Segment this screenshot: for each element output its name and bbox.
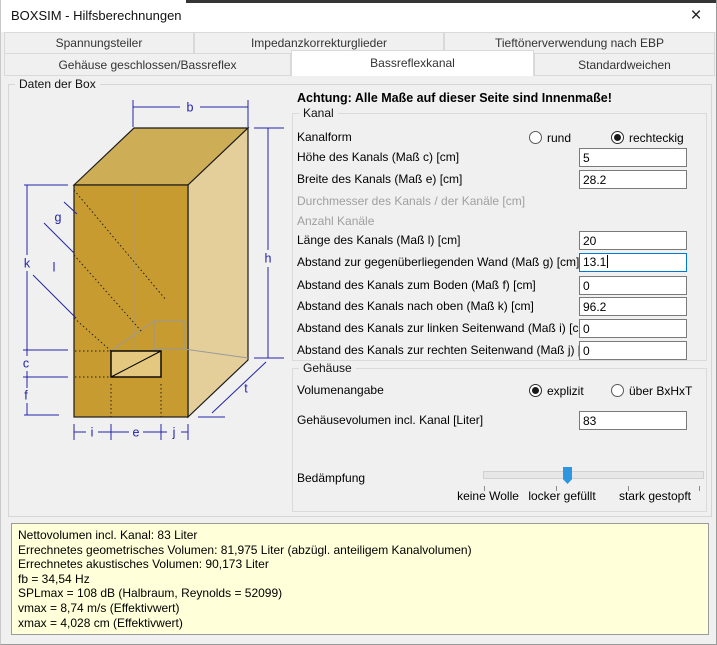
abstand-boden-label: Abstand des Kanals zum Boden (Maß f) [cm…	[297, 276, 536, 295]
tab-gehaeuse-geschlossen-bassreflex[interactable]: Gehäuse geschlossen/Bassreflex	[4, 53, 291, 76]
bedaempfung-label: Bedämpfung	[297, 469, 365, 488]
dim-label-f: f	[24, 388, 28, 402]
result-vmax: vmax = 8,74 m/s (Effektivwert)	[18, 601, 702, 616]
port-opening	[111, 351, 161, 377]
breite-label: Breite des Kanals (Maß e) [cm]	[297, 170, 462, 189]
breite-input[interactable]	[579, 170, 687, 189]
kanalform-label: Kanalform	[297, 128, 352, 147]
result-geometrisches-volumen: Errechnetes geometrisches Volumen: 81,97…	[18, 543, 702, 558]
hoehe-input[interactable]	[579, 148, 687, 167]
anzahl-kanaele-label: Anzahl Kanäle	[297, 212, 374, 231]
dim-label-g: g	[55, 210, 62, 224]
box-diagram: b h k g l c f i e j t	[1, 85, 291, 455]
boxsim-dialog: BOXSIM - Hilfsberechnungen × Spannungste…	[0, 0, 717, 645]
radio-rund-icon	[529, 131, 542, 144]
innenmasse-warning: Achtung: Alle Maße auf dieser Seite sind…	[297, 91, 612, 105]
result-splmax: SPLmax = 108 dB (Halbraum, Reynolds = 52…	[18, 586, 702, 601]
slider-label-keine-wolle: keine Wolle	[457, 489, 519, 503]
dim-label-b: b	[187, 100, 194, 114]
abstand-gegenueber-input[interactable]: 13.1	[579, 253, 687, 272]
laenge-input[interactable]	[579, 231, 687, 250]
radio-explizit[interactable]: explizit	[529, 381, 584, 400]
results-panel: Nettovolumen incl. Kanal: 83 Liter Errec…	[11, 523, 709, 635]
abstand-boden-input[interactable]	[579, 276, 687, 295]
abstand-links-label: Abstand des Kanals zur linken Seitenwand…	[297, 319, 592, 338]
radio-rund[interactable]: rund	[529, 128, 571, 147]
slider-label-stark-gestopft: stark gestopft	[619, 489, 691, 503]
close-button[interactable]: ×	[682, 4, 710, 28]
tab-bassreflexkanal[interactable]: Bassreflexkanal	[291, 50, 534, 76]
text-caret	[607, 255, 608, 268]
dim-label-c: c	[23, 356, 29, 370]
abstand-rechts-input[interactable]	[579, 341, 687, 360]
tab-standardweichen[interactable]: Standardweichen	[534, 53, 715, 76]
abstand-rechts-label: Abstand des Kanals zur rechten Seitenwan…	[297, 341, 600, 360]
dim-label-l: l	[53, 260, 56, 274]
bedaempfung-slider-track[interactable]	[483, 471, 704, 479]
slider-label-locker-gefuellt: locker gefüllt	[528, 489, 595, 503]
dim-label-i: i	[91, 425, 94, 439]
radio-rechteckig-icon	[611, 131, 624, 144]
window-title: BOXSIM - Hilfsberechnungen	[11, 8, 182, 23]
slider-tick	[699, 486, 700, 491]
gehaeusevolumen-label: Gehäusevolumen incl. Kanal [Liter]	[297, 411, 483, 430]
dim-label-j: j	[172, 425, 176, 439]
result-xmax: xmax = 4,028 cm (Effektivwert)	[18, 616, 702, 631]
radio-ueber-bxhxt[interactable]: über BxHxT	[611, 381, 692, 400]
abstand-gegenueber-label: Abstand zur gegenüberliegenden Wand (Maß…	[297, 253, 579, 272]
abstand-oben-label: Abstand des Kanals nach oben (Maß k) [cm…	[297, 297, 534, 316]
kanal-legend: Kanal	[299, 106, 338, 120]
result-akustisches-volumen: Errechnetes akustisches Volumen: 90,173 …	[18, 557, 702, 572]
volumenangabe-label: Volumenangabe	[297, 381, 384, 400]
dim-label-h: h	[265, 251, 272, 265]
close-icon: ×	[690, 5, 701, 26]
durchmesser-label: Durchmesser des Kanals / der Kanäle [cm]	[297, 192, 525, 211]
radio-explizit-icon	[529, 384, 542, 397]
gehaeuse-legend: Gehäuse	[299, 361, 356, 375]
radio-ueber-bxhxt-icon	[611, 384, 624, 397]
gehaeusevolumen-input[interactable]	[579, 411, 687, 430]
box-front-face	[74, 185, 188, 417]
result-nettovolumen: Nettovolumen incl. Kanal: 83 Liter	[18, 528, 702, 543]
dim-label-k: k	[24, 256, 31, 270]
dim-label-e: e	[133, 425, 140, 439]
laenge-label: Länge des Kanals (Maß l) [cm]	[297, 231, 460, 250]
tab-spannungsteiler[interactable]: Spannungsteiler	[4, 32, 194, 54]
title-bar: BOXSIM - Hilfsberechnungen ×	[1, 0, 717, 32]
hoehe-label: Höhe des Kanals (Maß c) [cm]	[297, 148, 459, 167]
window-top-edge	[186, 0, 717, 3]
abstand-links-input[interactable]	[579, 319, 687, 338]
abstand-oben-input[interactable]	[579, 297, 687, 316]
radio-rechteckig[interactable]: rechteckig	[611, 128, 684, 147]
dim-label-t: t	[244, 381, 248, 395]
result-fb: fb = 34,54 Hz	[18, 572, 702, 587]
